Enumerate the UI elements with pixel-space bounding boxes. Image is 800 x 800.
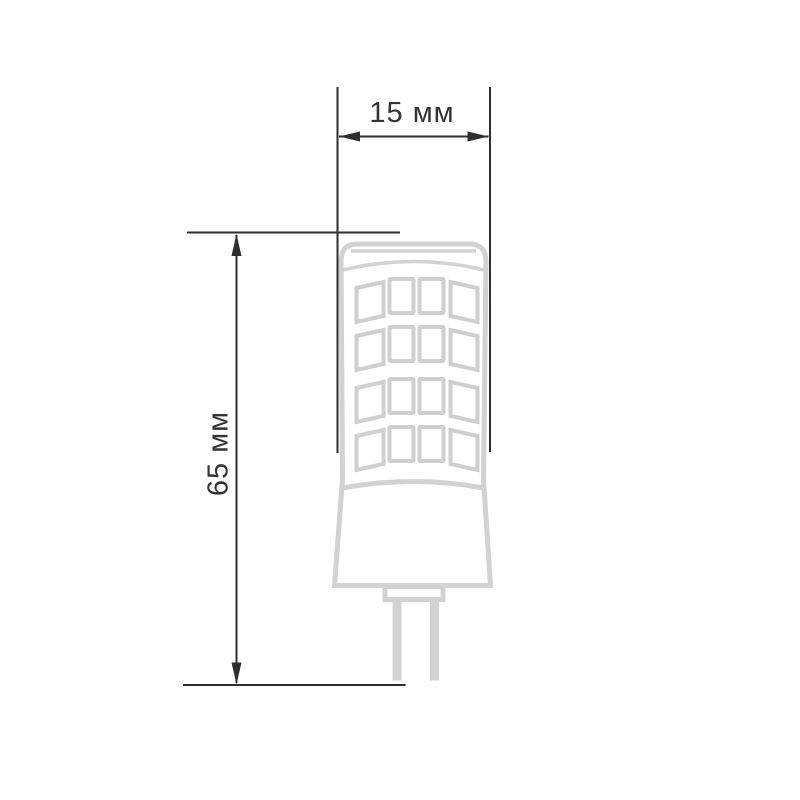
arrowhead-up-icon bbox=[232, 234, 242, 256]
led-chip bbox=[390, 279, 414, 313]
led-chip bbox=[390, 327, 414, 361]
arrowhead-down-icon bbox=[232, 663, 242, 685]
height-dimension-label: 65 мм bbox=[203, 411, 235, 496]
led-chip bbox=[390, 427, 414, 461]
led-chip bbox=[451, 430, 478, 470]
width-dimension-label: 15 мм bbox=[369, 97, 454, 129]
bulb-collar bbox=[385, 587, 443, 600]
arrowhead-right-icon bbox=[468, 132, 489, 142]
led-chip bbox=[420, 427, 444, 461]
g4-led-bulb-drawing bbox=[335, 244, 491, 681]
led-chip bbox=[357, 430, 384, 470]
pin-left bbox=[393, 600, 402, 681]
led-chip bbox=[390, 379, 414, 413]
arrowhead-left-icon bbox=[339, 132, 360, 142]
led-chip bbox=[451, 282, 478, 322]
led-chip bbox=[420, 327, 444, 361]
led-chip bbox=[420, 279, 444, 313]
pin-right bbox=[430, 600, 439, 681]
dimension-diagram: 15 мм 65 мм bbox=[0, 0, 800, 800]
led-chip bbox=[357, 282, 384, 322]
led-chip bbox=[357, 382, 384, 422]
led-chip bbox=[451, 330, 478, 370]
led-chip bbox=[451, 382, 478, 422]
led-chip bbox=[420, 379, 444, 413]
led-chip bbox=[357, 330, 384, 370]
dimension-diagram-page: 15 мм 65 мм bbox=[0, 0, 800, 800]
